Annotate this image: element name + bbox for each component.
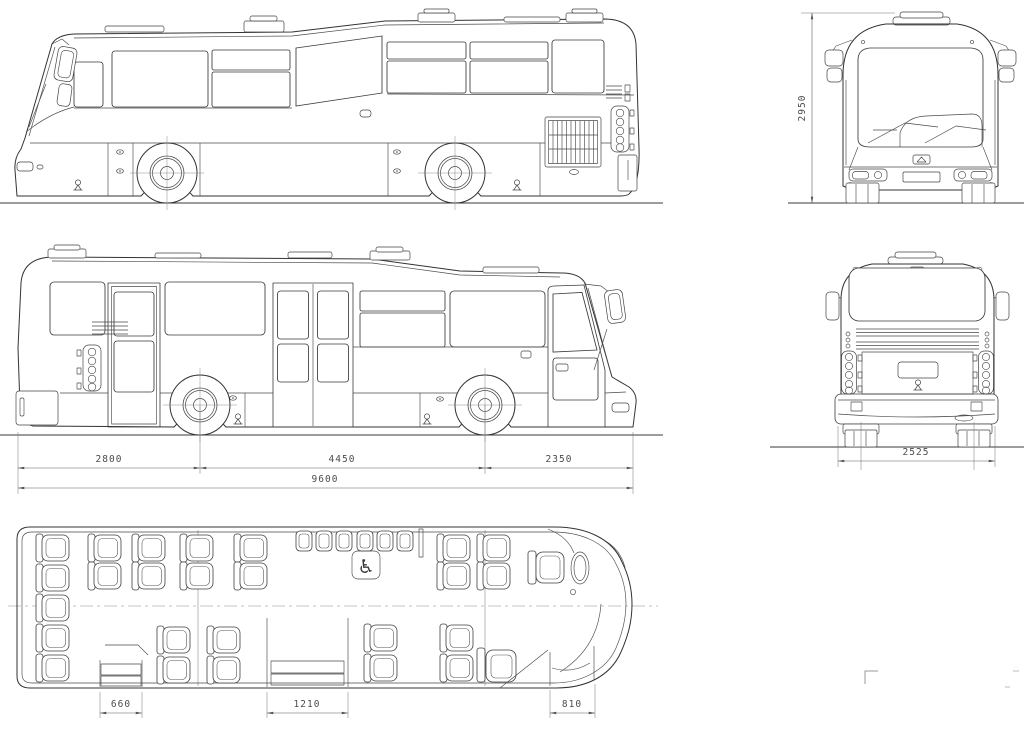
dim-label-rear-overhang: 2800 — [96, 454, 123, 465]
windshield-edge — [29, 47, 55, 136]
wheelchair-area: ♿ — [352, 551, 380, 579]
seat — [132, 534, 165, 562]
seat — [477, 534, 510, 562]
rear-door-plan — [100, 645, 148, 687]
front-wheel — [130, 136, 204, 210]
windshield — [858, 48, 986, 147]
dim-label-overall-height: 2950 — [797, 95, 808, 122]
folding-seats — [296, 529, 423, 557]
side-windows — [74, 36, 604, 107]
seat — [36, 624, 69, 652]
side-window-vent — [470, 42, 548, 59]
dim-label-wheelbase: 4450 — [329, 454, 356, 465]
jack-point-icon — [513, 180, 522, 190]
left-mirror — [826, 292, 841, 320]
seat — [36, 594, 69, 622]
side-window — [470, 61, 548, 93]
tail-light-right — [973, 332, 994, 394]
folding-seat — [357, 531, 373, 551]
bus-blueprint-page: 2950 — [0, 0, 1024, 738]
lock-icon — [914, 380, 923, 390]
right-row-seats — [157, 624, 516, 684]
seat — [234, 534, 267, 562]
dim-label-front-door: 810 — [562, 699, 582, 710]
side-window — [360, 313, 445, 347]
tail-lights — [611, 106, 634, 152]
seat — [477, 562, 510, 590]
seat — [88, 562, 121, 590]
right-mirror — [990, 40, 1016, 82]
seat — [180, 534, 213, 562]
tail-light-left — [842, 332, 863, 394]
headlight-icon — [612, 403, 629, 412]
side-window — [212, 72, 290, 107]
wheelchair-icon: ♿ — [357, 556, 374, 578]
folding-seat — [316, 531, 332, 551]
jack-point-icon — [74, 180, 83, 190]
seat — [440, 624, 473, 652]
seat — [364, 624, 397, 652]
floor-plan-view: ♿ — [8, 527, 658, 718]
roof-hatch — [888, 252, 943, 264]
seat — [207, 626, 240, 654]
seat — [36, 654, 69, 682]
side-window-sloped — [296, 36, 382, 106]
right-mirror — [994, 292, 1009, 320]
seat — [157, 626, 190, 654]
license-plate-recess — [898, 362, 938, 378]
sheet-marks — [865, 671, 1019, 687]
folding-seat — [397, 531, 413, 551]
folding-seat — [377, 531, 393, 551]
door-dimensions: 660 1210 810 — [100, 684, 595, 718]
seat — [36, 534, 69, 562]
rear-view: 2525 — [770, 252, 1024, 470]
seat — [437, 534, 470, 562]
seat — [234, 562, 267, 590]
seat — [157, 656, 190, 684]
side-view-left: 2800 4450 2350 9600 — [0, 245, 663, 494]
side-window-vent — [387, 42, 466, 59]
rear-bumper-panel — [16, 391, 58, 425]
tail-lights — [77, 345, 101, 391]
side-window-vent — [360, 291, 445, 311]
front-door — [548, 285, 605, 427]
jack-point-icon — [234, 414, 243, 424]
seat — [132, 562, 165, 590]
middle-door-plan — [267, 618, 348, 687]
bus-blueprint-canvas: 2950 — [0, 0, 1024, 738]
rear-window — [849, 268, 985, 321]
dim-label-overall-length: 9600 — [312, 474, 339, 485]
side-window — [450, 291, 545, 347]
reflector-icon — [851, 402, 862, 411]
dim-label-middle-door: 1210 — [294, 699, 321, 710]
reflector-icon — [971, 402, 982, 411]
mirror — [584, 284, 626, 324]
seat — [364, 654, 397, 682]
seat — [440, 654, 473, 682]
folding-seat — [296, 531, 312, 551]
folding-seat — [336, 531, 352, 551]
rear-wheel — [418, 136, 492, 210]
side-window-rear — [552, 40, 604, 93]
rear-wheels — [843, 422, 992, 470]
side-window-vent — [212, 50, 290, 70]
front-wheels — [846, 183, 995, 203]
rear-vents — [606, 85, 630, 101]
wiper-icon — [29, 84, 46, 127]
rear-bumper — [835, 394, 998, 424]
seat — [437, 562, 470, 590]
engine-lid — [862, 352, 973, 394]
dim-label-rear-door: 660 — [111, 699, 131, 710]
partition — [419, 529, 423, 557]
fuel-cap-icon — [360, 110, 371, 117]
front-view: 2950 — [788, 12, 1024, 203]
driver-area — [528, 529, 626, 595]
seat — [36, 564, 69, 592]
driver-side-window — [74, 62, 103, 107]
door-handle-icon — [556, 364, 568, 371]
guide-seat — [477, 648, 516, 682]
rear-quarter-window — [50, 282, 105, 335]
left-mirror — [825, 40, 852, 82]
seat — [88, 534, 121, 562]
brand-badge — [913, 155, 930, 164]
middle-door — [273, 283, 353, 427]
rear-bench-seats — [36, 534, 69, 682]
side-view-right — [0, 9, 663, 210]
driver-seat — [528, 551, 536, 584]
side-window — [387, 61, 466, 93]
length-dimensions: 2800 4450 2350 9600 — [18, 405, 633, 494]
side-window — [112, 51, 208, 107]
roof-hatch — [893, 12, 950, 25]
dim-label-overall-width: 2525 — [903, 447, 930, 458]
roof-hatch-icon — [250, 16, 277, 21]
seat — [180, 562, 213, 590]
dim-label-front-overhang: 2350 — [546, 454, 573, 465]
rear-corner-panel — [618, 155, 637, 191]
license-plate — [903, 172, 940, 182]
headlight-icon — [17, 162, 33, 171]
engine-grille — [545, 117, 601, 175]
engine-vents — [856, 329, 979, 349]
rear-door — [108, 283, 160, 427]
side-window — [165, 282, 265, 335]
jack-point-icon — [423, 414, 432, 424]
skirt-panels — [60, 392, 626, 427]
seat — [207, 656, 240, 684]
